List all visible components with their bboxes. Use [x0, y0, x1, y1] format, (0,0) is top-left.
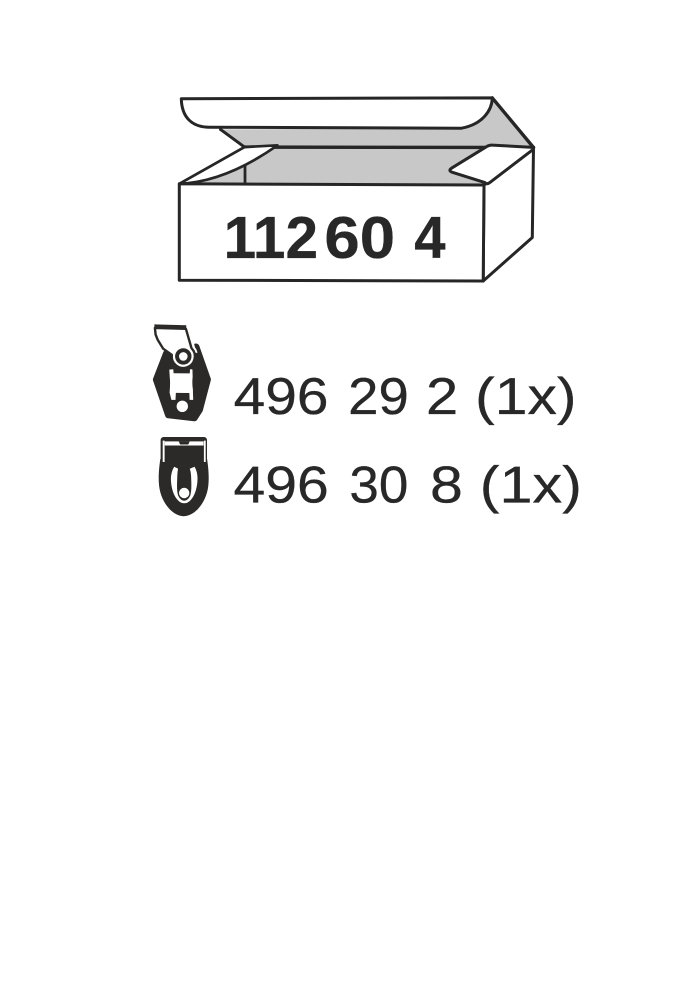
svg-text:112: 112: [224, 204, 318, 271]
svg-text:(1x): (1x): [480, 457, 582, 515]
svg-text:8: 8: [430, 457, 463, 515]
svg-text:30: 30: [349, 457, 408, 515]
svg-text:496: 496: [234, 368, 329, 426]
svg-text:2: 2: [426, 368, 458, 426]
svg-text:60: 60: [324, 204, 395, 271]
svg-text:496: 496: [234, 457, 329, 515]
svg-text:(1x): (1x): [475, 368, 576, 426]
svg-text:4: 4: [414, 204, 445, 271]
svg-text:29: 29: [348, 368, 409, 426]
